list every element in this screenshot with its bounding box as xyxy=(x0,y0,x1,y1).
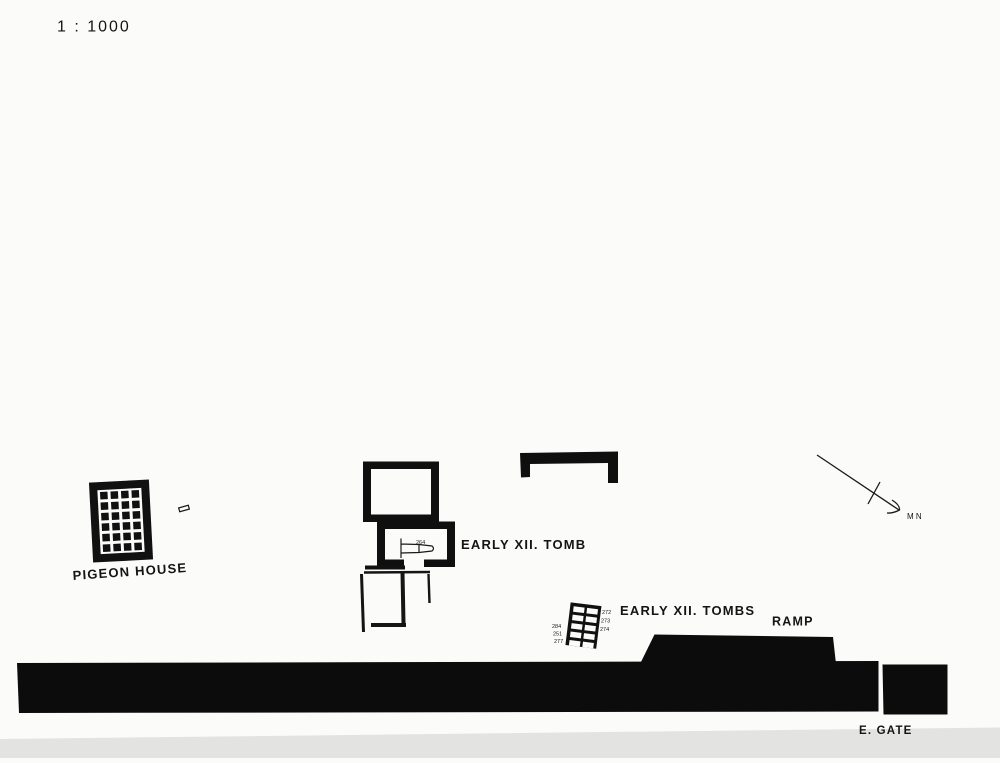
svg-text:EARLY XII. TOMBS: EARLY XII. TOMBS xyxy=(620,603,755,618)
svg-text:M N: M N xyxy=(907,512,922,521)
svg-text:EARLY XII. TOMB: EARLY XII. TOMB xyxy=(461,537,586,552)
svg-text:284: 284 xyxy=(552,624,561,630)
svg-text:1 : 1000: 1 : 1000 xyxy=(57,19,131,36)
svg-text:RAMP: RAMP xyxy=(772,615,814,629)
svg-text:274: 274 xyxy=(600,627,609,633)
svg-text:277: 277 xyxy=(554,639,563,645)
svg-text:273: 273 xyxy=(601,619,610,625)
svg-text:264: 264 xyxy=(416,540,425,546)
svg-text:E. GATE: E. GATE xyxy=(859,725,913,737)
svg-text:251: 251 xyxy=(553,632,562,638)
svg-text:272: 272 xyxy=(602,610,611,616)
